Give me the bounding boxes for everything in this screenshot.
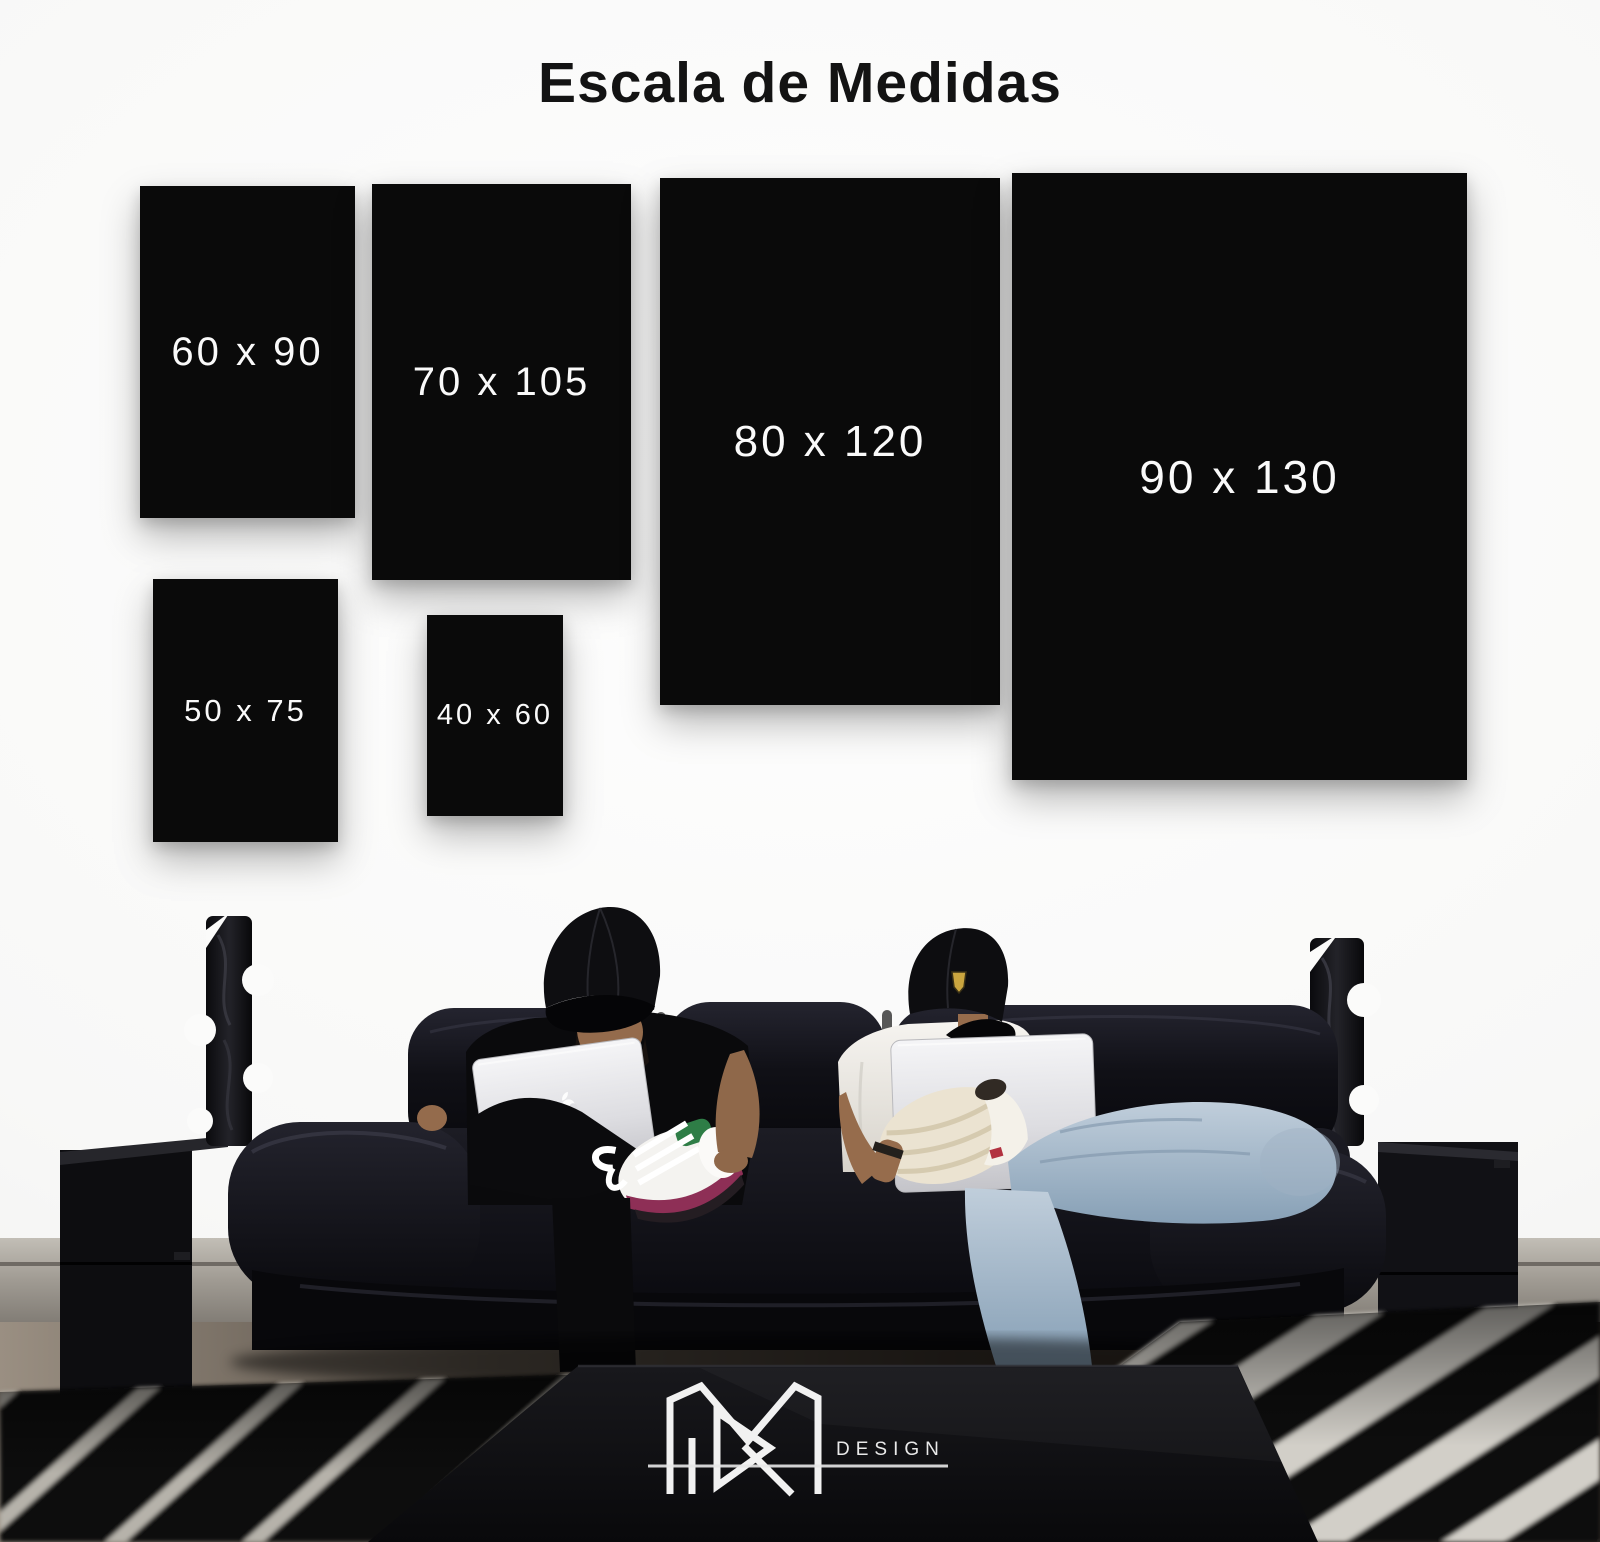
poster-swatch-80x120: 80 x 120 [660,178,1000,705]
poster-swatch-60x90: 60 x 90 [140,186,355,518]
size-label-80x120: 80 x 120 [734,417,927,467]
poster-swatch-50x75: 50 x 75 [153,579,338,842]
size-label-90x130: 90 x 130 [1139,450,1339,504]
size-guide-image: Escala de Medidas 60 x 90 70 x 105 80 x … [0,0,1600,1542]
lifestyle-photo: DESIGN [0,852,1600,1542]
page-title: Escala de Medidas [0,50,1600,116]
size-label-70x105: 70 x 105 [413,360,590,405]
size-label-50x75: 50 x 75 [184,693,307,729]
black-cap-left [544,907,660,1010]
brand-wordmark: DESIGN [836,1439,945,1460]
poster-swatch-70x105: 70 x 105 [372,184,631,580]
size-label-40x60: 40 x 60 [437,699,553,732]
candlestick-left [184,912,274,1146]
poster-swatch-90x130: 90 x 130 [1012,173,1467,780]
poster-swatch-40x60: 40 x 60 [427,615,563,816]
hand [417,1105,447,1131]
size-label-60x90: 60 x 90 [171,330,323,375]
